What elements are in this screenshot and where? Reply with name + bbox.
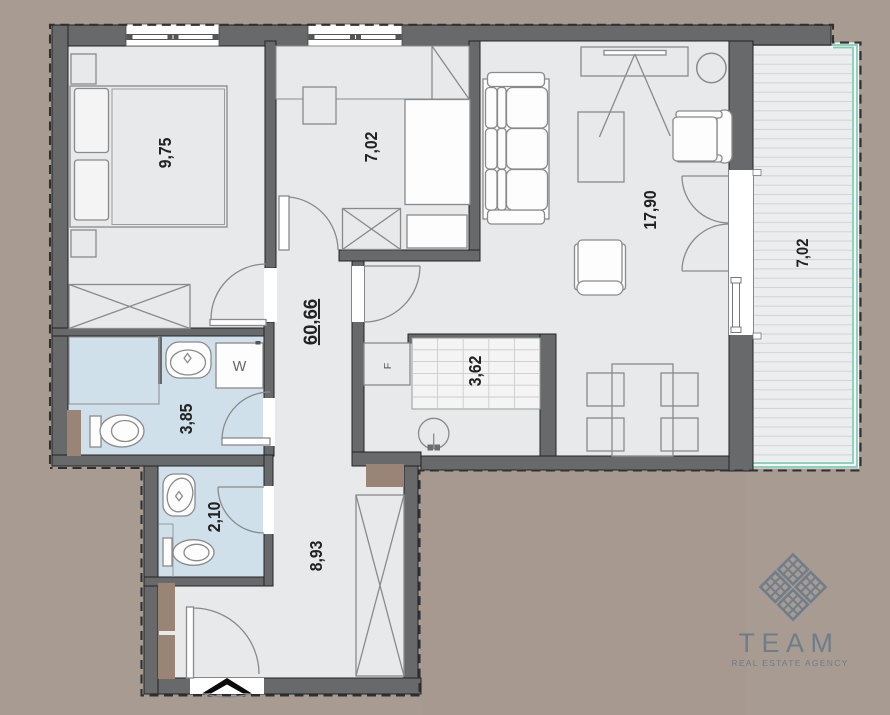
svg-text:W: W — [233, 359, 247, 375]
svg-text:TEAM: TEAM — [738, 628, 839, 658]
svg-text:17,90: 17,90 — [640, 190, 660, 229]
svg-text:7,02: 7,02 — [794, 238, 812, 267]
svg-text:9,75: 9,75 — [155, 138, 175, 169]
svg-text:REAL ESTATE AGENCY: REAL ESTATE AGENCY — [731, 658, 848, 668]
svg-text:7,02: 7,02 — [361, 132, 381, 163]
svg-text:3,85: 3,85 — [176, 404, 196, 435]
svg-text:60,66: 60,66 — [301, 299, 323, 345]
svg-text:F: F — [382, 363, 394, 369]
svg-text:3,62: 3,62 — [465, 356, 485, 387]
svg-text:2,10: 2,10 — [204, 502, 224, 533]
svg-text:8,93: 8,93 — [306, 541, 326, 572]
